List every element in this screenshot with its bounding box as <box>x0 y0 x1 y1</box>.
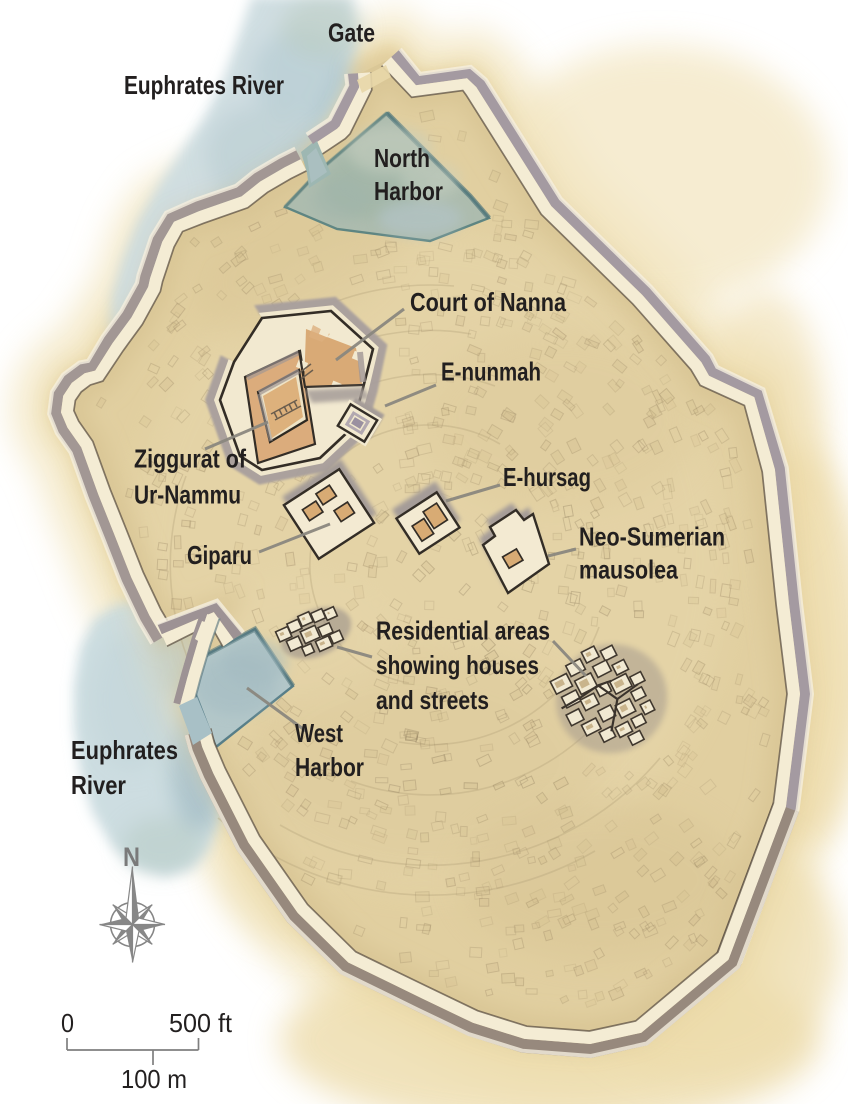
svg-text:North: North <box>374 143 430 173</box>
svg-text:mausolea: mausolea <box>579 555 678 585</box>
svg-text:0: 0 <box>61 1008 74 1038</box>
svg-text:Ziggurat of: Ziggurat of <box>134 444 246 474</box>
svg-text:Euphrates River: Euphrates River <box>124 70 284 100</box>
svg-text:Harbor: Harbor <box>374 176 443 206</box>
svg-text:Court of Nanna: Court of Nanna <box>410 287 566 317</box>
svg-text:and streets: and streets <box>376 685 489 715</box>
svg-text:West: West <box>295 718 343 748</box>
svg-text:N: N <box>123 842 140 872</box>
svg-text:100 m: 100 m <box>121 1064 187 1094</box>
svg-text:Harbor: Harbor <box>295 752 364 782</box>
svg-text:E-nunmah: E-nunmah <box>441 357 541 387</box>
svg-text:Neo-Sumerian: Neo-Sumerian <box>579 522 725 552</box>
svg-text:Giparu: Giparu <box>187 540 252 570</box>
svg-text:showing houses: showing houses <box>376 650 539 680</box>
svg-text:E-hursag: E-hursag <box>503 462 591 492</box>
svg-text:Residential areas: Residential areas <box>376 616 550 646</box>
svg-text:Gate: Gate <box>328 18 375 48</box>
svg-text:500 ft: 500 ft <box>169 1008 233 1038</box>
svg-text:River: River <box>71 770 126 800</box>
svg-text:Euphrates: Euphrates <box>71 735 178 765</box>
svg-text:Ur-Nammu: Ur-Nammu <box>134 480 241 510</box>
